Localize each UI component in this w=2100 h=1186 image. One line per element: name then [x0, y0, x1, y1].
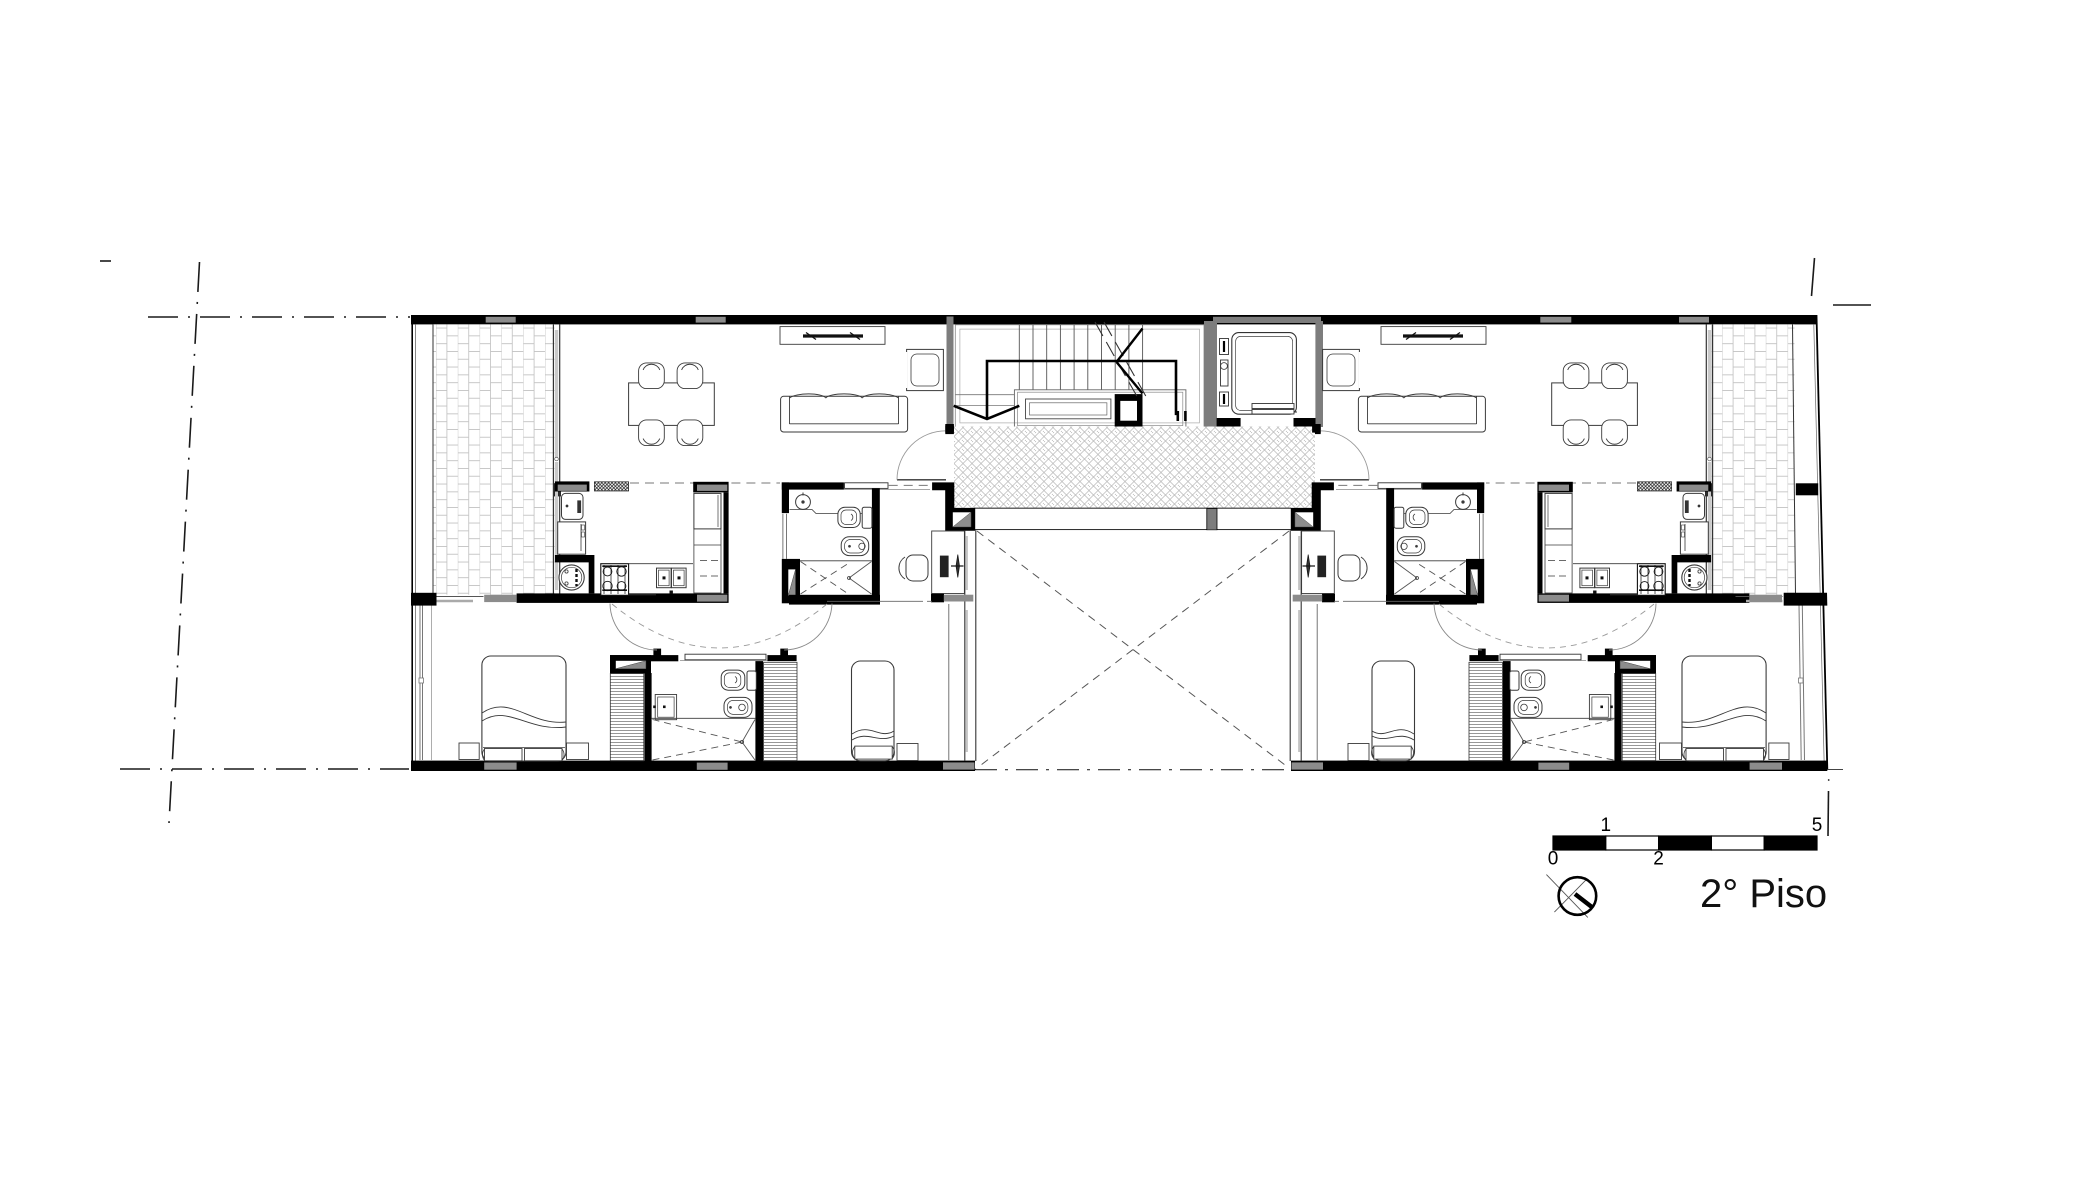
- svg-text:5: 5: [1812, 815, 1823, 836]
- svg-text:2: 2: [1653, 849, 1664, 870]
- svg-text:0: 0: [1548, 849, 1559, 870]
- svg-text:2° Piso: 2° Piso: [1700, 872, 1827, 916]
- svg-text:1: 1: [1601, 815, 1612, 836]
